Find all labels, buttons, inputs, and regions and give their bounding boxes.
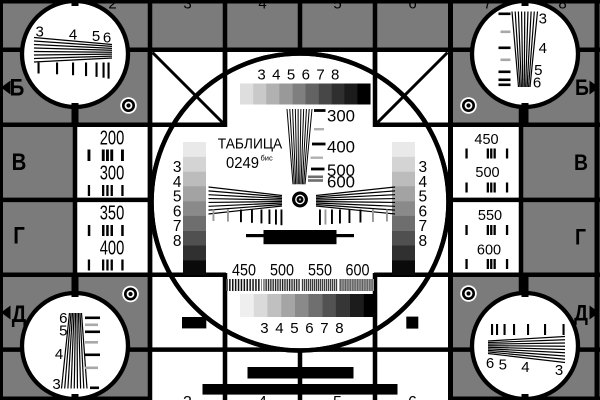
svg-text:8: 8 <box>419 233 428 250</box>
svg-text:3: 3 <box>260 320 268 337</box>
svg-text:600: 600 <box>327 172 355 191</box>
svg-text:300: 300 <box>100 163 125 185</box>
svg-text:6: 6 <box>103 30 111 47</box>
svg-text:3: 3 <box>52 376 60 393</box>
svg-text:450: 450 <box>232 261 256 280</box>
svg-text:7: 7 <box>320 320 328 337</box>
svg-text:8: 8 <box>335 320 343 337</box>
svg-text:3: 3 <box>555 362 563 379</box>
svg-text:5: 5 <box>59 323 67 340</box>
svg-text:6: 6 <box>408 394 417 400</box>
svg-text:5: 5 <box>290 320 298 337</box>
svg-text:6: 6 <box>533 75 541 92</box>
svg-text:500: 500 <box>270 261 294 280</box>
svg-text:В: В <box>574 151 588 175</box>
svg-text:4: 4 <box>275 320 283 337</box>
svg-text:4: 4 <box>258 394 267 400</box>
svg-text:6: 6 <box>302 67 310 84</box>
svg-text:5: 5 <box>92 28 100 45</box>
svg-text:550: 550 <box>478 208 502 224</box>
svg-text:3: 3 <box>183 394 192 400</box>
svg-text:3: 3 <box>257 67 265 84</box>
svg-text:Б: Б <box>575 76 589 100</box>
svg-text:Д: Д <box>12 300 27 327</box>
svg-text:600: 600 <box>346 261 370 280</box>
svg-text:8: 8 <box>173 233 182 250</box>
svg-text:3: 3 <box>36 24 44 41</box>
svg-text:300: 300 <box>327 106 355 125</box>
svg-text:4: 4 <box>69 27 77 44</box>
svg-text:400: 400 <box>327 138 355 157</box>
svg-text:4: 4 <box>539 40 547 57</box>
svg-text:3: 3 <box>539 10 547 27</box>
svg-text:В: В <box>12 148 27 175</box>
svg-text:Д: Д <box>574 301 588 325</box>
svg-text:4: 4 <box>272 67 280 84</box>
svg-text:6: 6 <box>305 320 313 337</box>
svg-text:350: 350 <box>100 203 125 225</box>
svg-text:5: 5 <box>499 357 507 374</box>
svg-text:400: 400 <box>100 238 125 260</box>
svg-text:200: 200 <box>100 128 125 150</box>
svg-text:6: 6 <box>486 355 494 372</box>
svg-text:5: 5 <box>287 67 295 84</box>
svg-text:4: 4 <box>521 359 529 376</box>
svg-text:Г: Г <box>575 225 586 249</box>
svg-text:бис: бис <box>261 154 273 163</box>
svg-text:550: 550 <box>308 261 332 280</box>
svg-text:5: 5 <box>333 394 342 400</box>
svg-text:600: 600 <box>477 243 501 259</box>
svg-text:ТАБЛИЦА: ТАБЛИЦА <box>218 136 283 153</box>
svg-text:0249: 0249 <box>226 155 259 172</box>
svg-text:450: 450 <box>474 132 498 148</box>
svg-text:4: 4 <box>55 346 63 363</box>
svg-text:8: 8 <box>331 67 339 84</box>
svg-text:7: 7 <box>316 67 324 84</box>
svg-text:Б: Б <box>10 74 25 101</box>
svg-text:500: 500 <box>475 165 499 181</box>
svg-text:Г: Г <box>13 222 25 249</box>
